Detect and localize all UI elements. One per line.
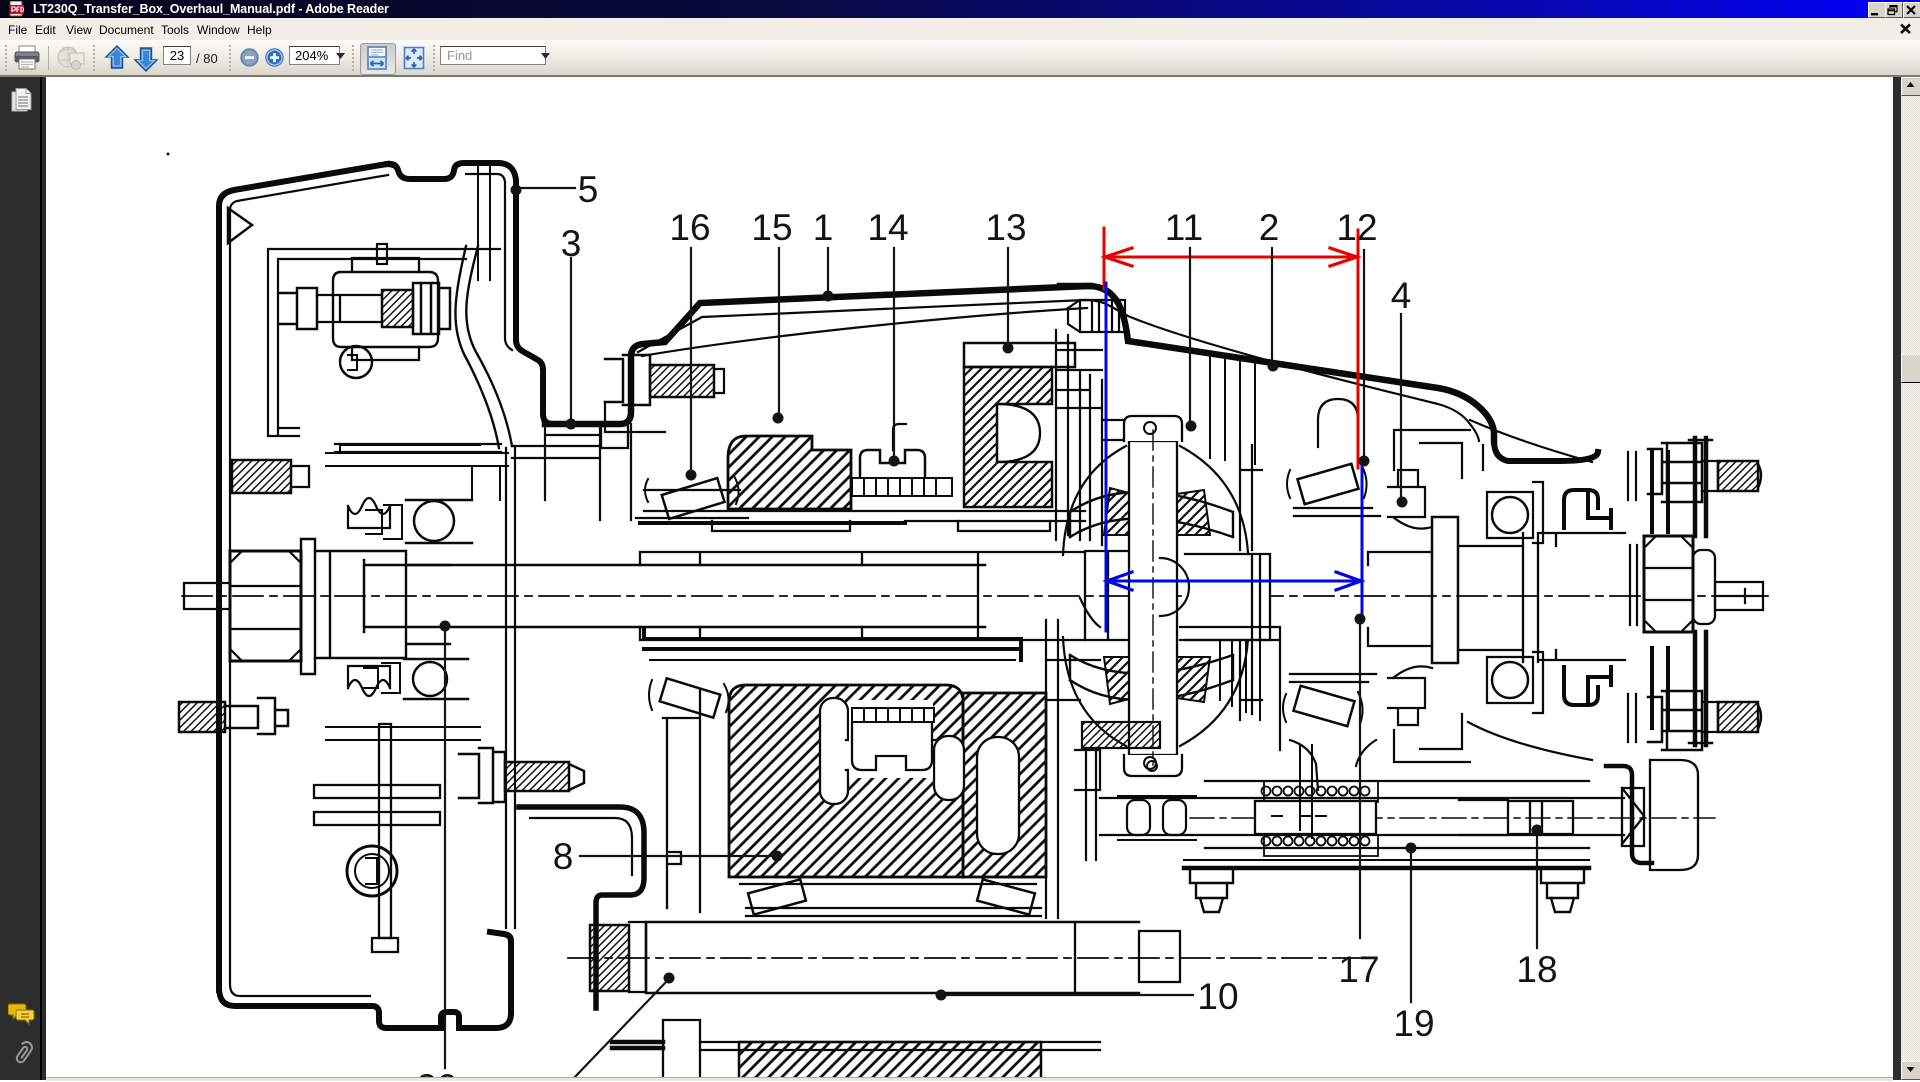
svg-text:4: 4 xyxy=(1391,275,1412,316)
svg-text:13: 13 xyxy=(985,207,1026,248)
svg-text:16: 16 xyxy=(669,207,710,248)
svg-text:19: 19 xyxy=(1393,1003,1434,1044)
svg-text:3: 3 xyxy=(561,223,582,264)
svg-text:2: 2 xyxy=(1259,207,1280,248)
svg-text:1: 1 xyxy=(813,207,834,248)
svg-text:11: 11 xyxy=(1165,207,1203,248)
svg-text:15: 15 xyxy=(751,207,792,248)
svg-text:10: 10 xyxy=(1197,976,1238,1017)
svg-text:18: 18 xyxy=(1516,949,1557,990)
svg-text:12: 12 xyxy=(1336,207,1377,248)
svg-text:8: 8 xyxy=(553,836,574,877)
svg-text:5: 5 xyxy=(578,169,599,210)
svg-text:14: 14 xyxy=(867,207,908,248)
svg-text:17: 17 xyxy=(1338,949,1379,990)
